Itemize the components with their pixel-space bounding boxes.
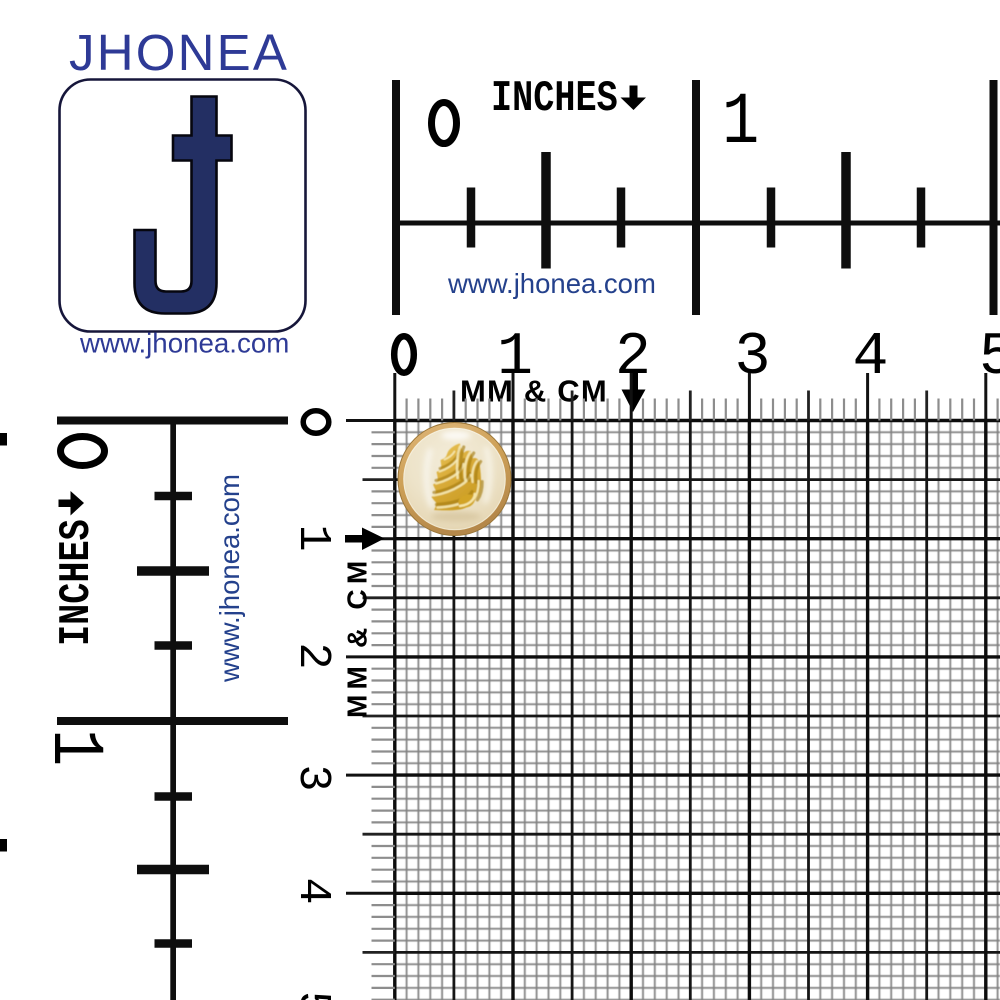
svg-text:JHONEA: JHONEA [69,24,289,81]
svg-text:1: 1 [287,525,338,552]
svg-text:INCHES: INCHES [491,74,618,124]
svg-text:INCHES: INCHES [52,519,102,646]
svg-text:www.jhonea.com: www.jhonea.com [214,474,245,683]
svg-text:4: 4 [287,878,338,905]
svg-text:2: 2 [287,643,338,670]
svg-text:www.jhonea.com: www.jhonea.com [447,268,656,299]
svg-text:www.jhonea.com: www.jhonea.com [79,328,289,359]
svg-text:4: 4 [853,324,889,392]
svg-text:MM & CM: MM & CM [460,374,608,409]
svg-text:3: 3 [287,765,338,792]
svg-text:5: 5 [287,991,338,1000]
svg-text:1: 1 [722,83,759,165]
svg-text:5: 5 [979,324,1000,392]
svg-text:1: 1 [32,729,114,766]
svg-text:MM & CM: MM & CM [342,556,373,718]
svg-text:3: 3 [735,324,771,392]
